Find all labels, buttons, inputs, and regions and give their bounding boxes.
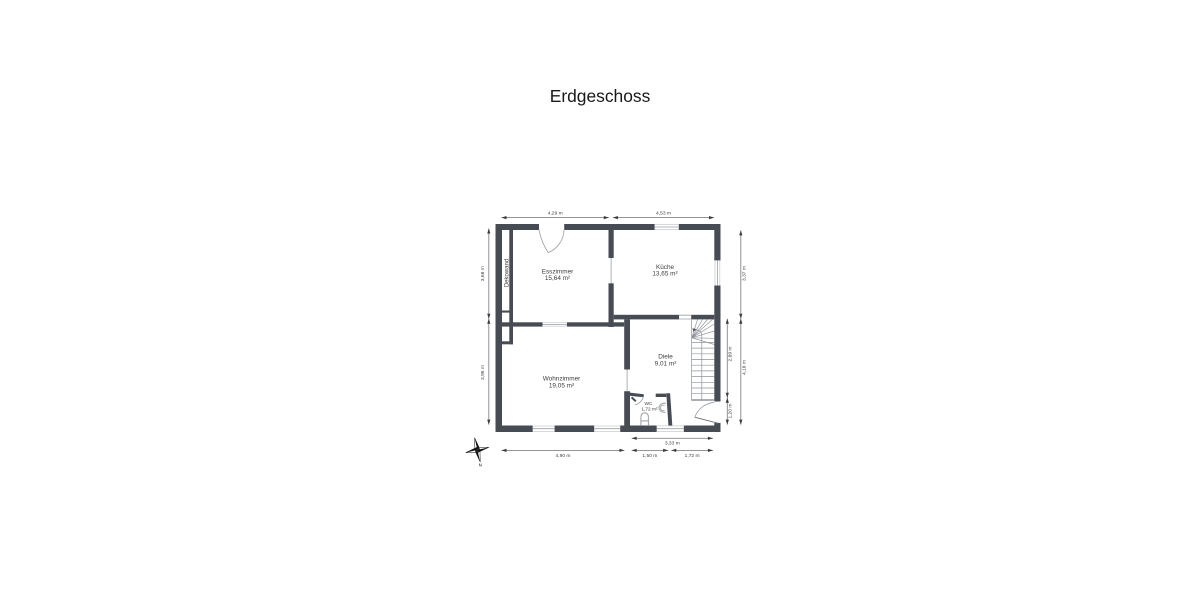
svg-text:3,33 m: 3,33 m xyxy=(665,441,680,447)
svg-text:Dekowand: Dekowand xyxy=(505,259,511,287)
svg-text:15,64 m²: 15,64 m² xyxy=(545,275,570,282)
svg-text:WC: WC xyxy=(645,401,654,407)
svg-text:4,29 m: 4,29 m xyxy=(548,210,563,216)
svg-text:19,05 m²: 19,05 m² xyxy=(549,382,574,389)
svg-text:Diele: Diele xyxy=(658,353,673,360)
svg-text:Wohnzimmer: Wohnzimmer xyxy=(543,375,581,382)
svg-text:Erdgeschoss: Erdgeschoss xyxy=(550,86,651,106)
svg-text:3,68 m: 3,68 m xyxy=(480,266,486,281)
svg-text:3,37 m: 3,37 m xyxy=(742,266,748,281)
svg-text:4,90 m: 4,90 m xyxy=(556,453,571,459)
svg-text:1,72 m²: 1,72 m² xyxy=(641,407,658,413)
svg-text:N: N xyxy=(479,463,482,468)
svg-text:2,89 m: 2,89 m xyxy=(728,347,734,362)
svg-text:3,95 m: 3,95 m xyxy=(480,365,486,380)
svg-text:4,18 m: 4,18 m xyxy=(742,360,748,375)
svg-text:13,65 m²: 13,65 m² xyxy=(652,271,677,278)
svg-text:1,72 m: 1,72 m xyxy=(685,453,700,459)
svg-text:1,20 m: 1,20 m xyxy=(728,404,734,419)
svg-text:4,53 m: 4,53 m xyxy=(656,210,671,216)
svg-text:1,50 m: 1,50 m xyxy=(642,453,657,459)
svg-text:9,01 m²: 9,01 m² xyxy=(655,360,677,367)
